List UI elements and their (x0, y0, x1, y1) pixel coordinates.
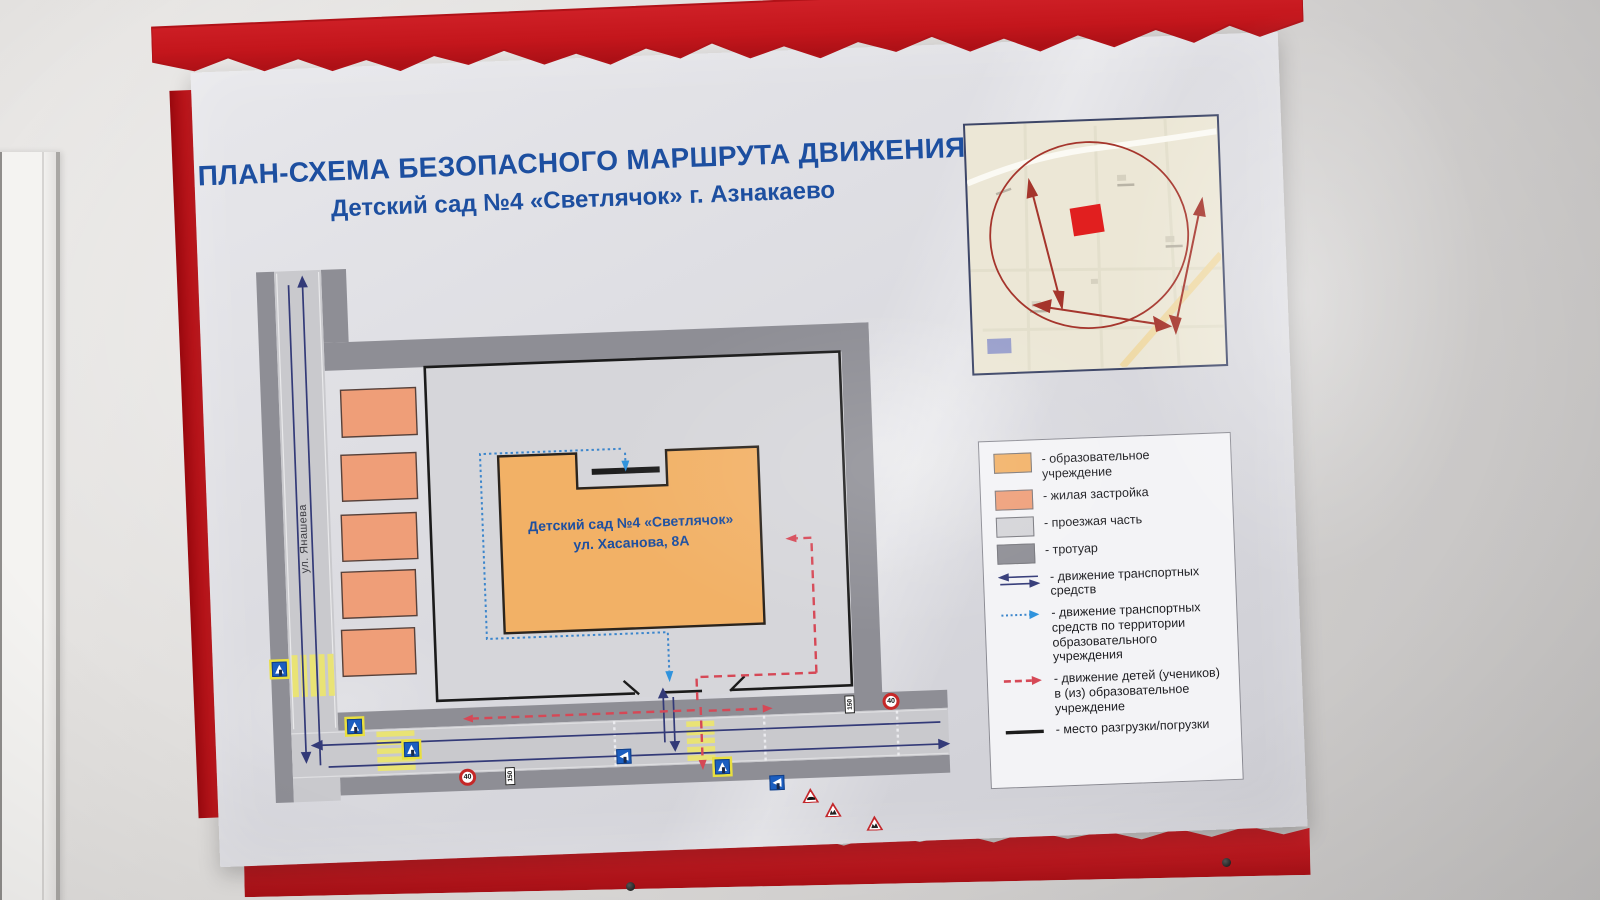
sidewalk-swatch (997, 543, 1036, 564)
children-warning-sign (824, 802, 842, 818)
legend-label: - движение транспортных средств по терри… (1051, 599, 1228, 665)
black-line-icon (1004, 724, 1047, 744)
legend-label: - движение детей (учеников) в (из) образ… (1054, 665, 1231, 716)
blue-dotted-arrow-icon (999, 607, 1042, 628)
map-label-marks (995, 181, 1185, 314)
residential-buildings (332, 387, 426, 676)
pedestrian-crossing-sign (404, 742, 420, 758)
legend-label: - тротуар (1045, 540, 1098, 557)
map-main-road (966, 131, 1218, 183)
speed-bump-warning-sign (802, 788, 820, 804)
legend-label: - проезжая часть (1044, 512, 1143, 530)
red-dashed-arrow-icon (1002, 673, 1045, 694)
pedestrian-crossing-sign (769, 775, 785, 791)
children-warning-sign (866, 815, 884, 831)
legend-item-residential: - жилая застройка (995, 482, 1223, 511)
legend-item-education: - образовательное учреждение (993, 445, 1221, 483)
legend-label: - образовательное учреждение (1041, 445, 1221, 481)
legend-item-internal-traffic: - движение транспортных средств по терри… (999, 599, 1228, 666)
two-way-arrow-icon (998, 571, 1041, 596)
legend-box: - образовательное учреждение - жилая зас… (978, 432, 1244, 789)
legend-item-sidewalk: - тротуар (997, 536, 1225, 565)
route-schema: ул. Янашева Детский сад №4 «Светлячок» у… (226, 245, 956, 806)
legend-item-roadway: - проезжая часть (996, 509, 1224, 538)
mounting-screw (1222, 858, 1231, 867)
legend-item-vehicle-traffic: - движение транспортных средств (998, 563, 1226, 601)
poster-sheet: ПЛАН-СХЕМА БЕЗОПАСНОГО МАРШРУТА ДВИЖЕНИЯ… (190, 32, 1307, 867)
pedestrian-crossing-sign (272, 661, 288, 677)
legend-item-loading-zone: - место разгрузки/погрузки (1004, 716, 1232, 744)
photo-scene: ПЛАН-СХЕМА БЕЗОПАСНОГО МАРШРУТА ДВИЖЕНИЯ… (0, 0, 1600, 900)
education-swatch (993, 452, 1032, 473)
map-school-marker (1070, 204, 1105, 237)
legend-label: - жилая застройка (1043, 485, 1149, 504)
pedestrian-crossing-sign (616, 749, 632, 765)
map-blue-block (987, 338, 1012, 354)
map-diagonal-road (1118, 254, 1225, 367)
pedestrian-crossing-sign (715, 759, 731, 775)
legend-item-children-route: - движение детей (учеников) в (из) образ… (1002, 665, 1231, 718)
distance-plate-sign: 150 (844, 695, 855, 713)
residential-swatch (995, 489, 1034, 510)
legend-label: - место разгрузки/погрузки (1055, 717, 1209, 738)
distance-plate-sign: 150 (505, 767, 516, 785)
pedestrian-crossing-sign (347, 719, 363, 735)
inset-map-drawing (965, 116, 1225, 372)
map-street-grid (965, 116, 1225, 372)
inset-locality-map (963, 114, 1228, 375)
roadway-swatch (996, 516, 1035, 537)
door-frame (0, 152, 60, 900)
map-building-marks (1027, 172, 1189, 307)
legend-label: - движение транспортных средств (1050, 563, 1226, 599)
mounting-screw (626, 882, 635, 891)
